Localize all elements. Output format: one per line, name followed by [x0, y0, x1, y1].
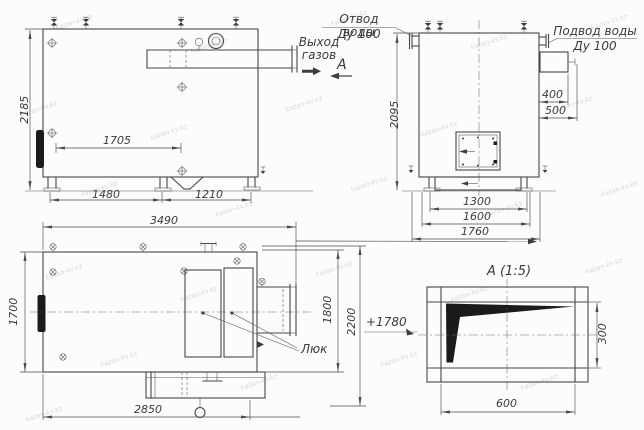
- small-nozzle-icon: [195, 38, 203, 46]
- air-gap-wedge: [446, 304, 574, 363]
- flue-flange-icon: [209, 34, 224, 49]
- label-water-outlet-2: Ду 100: [322, 28, 396, 41]
- dim-side-base-1300: 1300: [463, 196, 491, 208]
- dim-plan-inner-width: 1800: [322, 286, 334, 334]
- door-handle-icon: [459, 149, 467, 153]
- label-elevation-mark: +1780: [366, 316, 407, 329]
- label-section-a: А: [337, 58, 347, 73]
- side-view: [322, 20, 637, 242]
- dim-side-height: 2095: [389, 91, 401, 139]
- plan-view: [20, 222, 537, 420]
- burner-opening-plan: [38, 295, 46, 332]
- dim-detail-height: 300: [597, 310, 609, 358]
- detail-view: [418, 279, 601, 415]
- drain-circle-icon: [195, 408, 205, 418]
- gas-flow-arrow-icon: [302, 67, 321, 75]
- dim-front-base-left: 1480: [92, 189, 120, 201]
- technical-drawing-boiler: kazan-kv.kz kazan-kv.kz kazan-kv.kz kaza…: [0, 0, 644, 430]
- burner-opening: [36, 130, 44, 168]
- dim-front-upper-width: 1705: [103, 135, 131, 147]
- dim-side-base-1600: 1600: [463, 211, 491, 223]
- label-water-inlet-2: Ду 100: [552, 40, 638, 53]
- dim-side-offset-400: 400: [542, 89, 563, 101]
- dim-plan-length: 3490: [150, 215, 178, 227]
- drawing-linework: [0, 0, 644, 430]
- dim-detail-width: 600: [496, 398, 517, 410]
- label-water-inlet-1: Подвод воды: [552, 25, 638, 38]
- dim-side-base-1760: 1760: [461, 226, 489, 238]
- dim-front-base-right: 1210: [195, 189, 223, 201]
- dim-plan-bottom-length: 2850: [134, 404, 162, 416]
- section-arrow-icon: [330, 73, 339, 79]
- dim-plan-outer-width: 2200: [346, 298, 358, 346]
- dim-front-height: 2185: [19, 86, 31, 134]
- dim-plan-width: 1700: [8, 288, 20, 336]
- label-hatch: Люк: [301, 343, 327, 356]
- dim-side-offset-500: 500: [545, 105, 566, 117]
- hatch-2: [224, 268, 253, 357]
- detail-title: А (1:5): [479, 265, 539, 279]
